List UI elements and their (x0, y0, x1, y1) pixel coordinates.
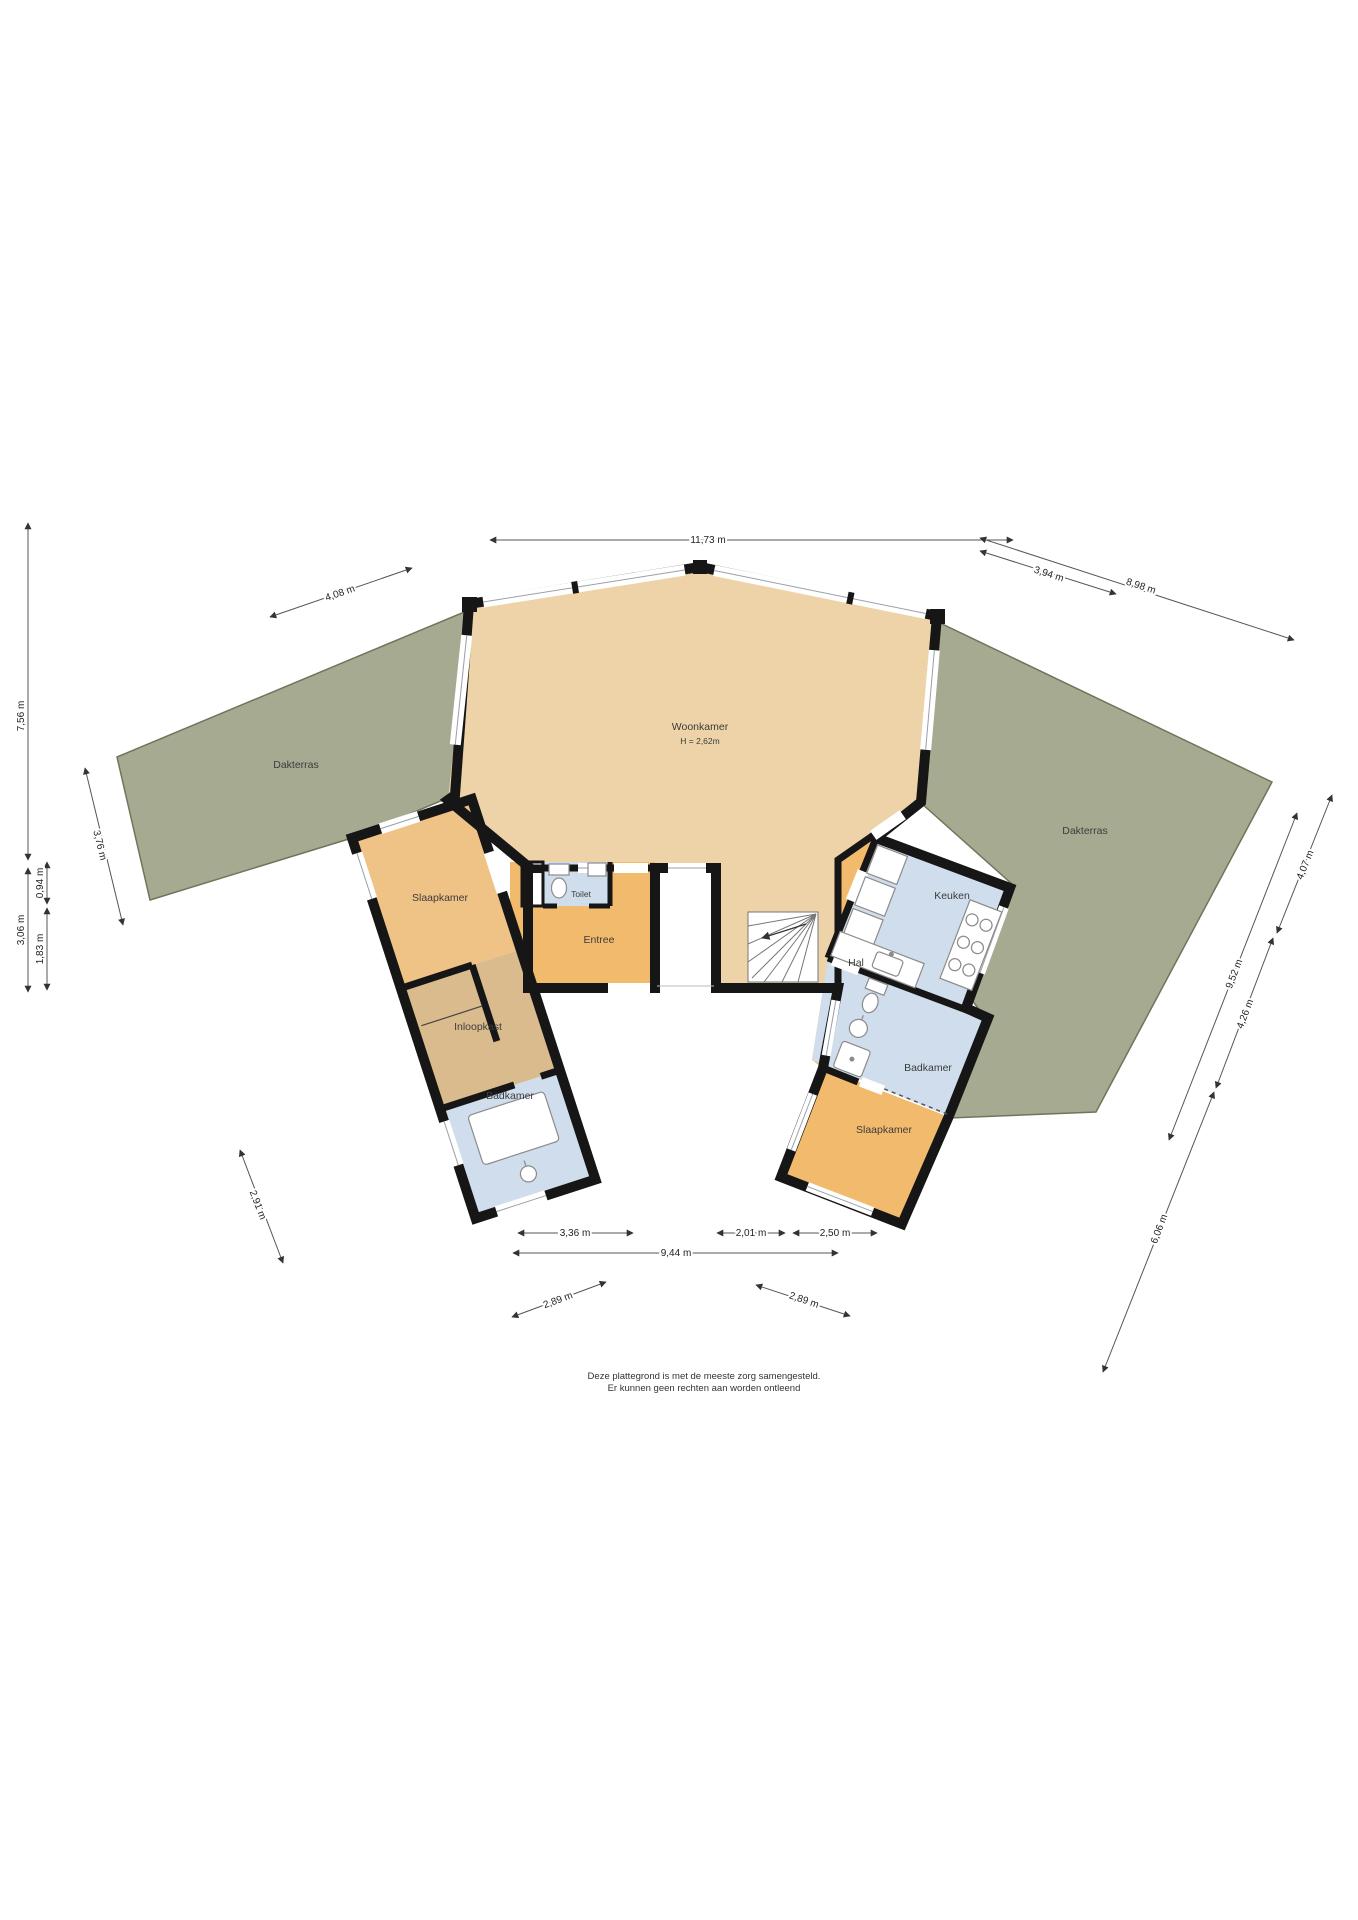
dim-label-bottom-seg-mid: 2,01 m (736, 1228, 767, 1239)
dim-label-bottom-seg-left: 3,36 m (560, 1228, 591, 1239)
dim-label-left-inner-upper: 0,94 m (35, 868, 46, 899)
staircase (748, 912, 818, 982)
dim-label-top-width: 11,73 m (690, 535, 725, 546)
room-label-woonkamer: Woonkamer (672, 721, 729, 733)
dim-label-left-inner-lower: 1,83 m (35, 934, 46, 965)
dim-label-bottom-seg-right: 2,50 m (820, 1228, 851, 1239)
dim-label-wing-left-lower: 2,91 m (247, 1189, 268, 1221)
wall-post-icon (462, 597, 477, 612)
floorplan-drawing: Woonkamer H = 2,62m Dakterras Dakterras … (0, 0, 1358, 1920)
sink-icon (588, 863, 606, 876)
dim-label-right-upper: 4,07 m (1295, 849, 1317, 881)
room-label-slaapkamer-left: Slaapkamer (412, 892, 469, 904)
window-notch-top (668, 863, 706, 873)
toilet-bowl-icon (552, 878, 567, 898)
toilet-tank-icon (549, 864, 569, 875)
room-label-woonkamer-height: H = 2,62m (680, 736, 719, 746)
dim-label-terrace-left-edge: 3,76 m (90, 829, 108, 861)
dim-label-top-left: 4,08 m (324, 583, 356, 603)
room-label-keuken: Keuken (934, 890, 970, 902)
dim-label-top-right-inner: 3,94 m (1033, 565, 1065, 585)
room-label-dakterras-right: Dakterras (1062, 825, 1108, 837)
room-label-badkamer-left: Badkamer (486, 1090, 534, 1102)
dim-label-top-right-outer: 8,98 m (1125, 577, 1157, 597)
door-entree-woonkamer (614, 863, 648, 873)
door-entree-exterior (608, 983, 650, 993)
dim-label-right-lower: 6,06 m (1149, 1213, 1170, 1245)
dim-label-bottom-diag-right: 2,89 m (788, 1290, 820, 1310)
room-label-badkamer-right: Badkamer (904, 1062, 952, 1074)
wall-post-icon (693, 560, 707, 574)
disclaimer-line2: Er kunnen geen rechten aan worden ontlee… (608, 1383, 801, 1394)
dim-label-left-total: 7,56 m (16, 701, 27, 732)
dim-label-right-total: 9,52 m (1224, 958, 1245, 990)
dim-label-bottom-diag-left: 2,89 m (542, 1290, 574, 1311)
dim-label-bottom-total: 9,44 m (661, 1248, 692, 1259)
room-label-hal: Hal (848, 957, 864, 969)
disclaimer-line1: Deze plattegrond is met de meeste zorg s… (588, 1371, 821, 1382)
room-label-entree: Entree (584, 934, 615, 946)
wall-post-icon (930, 609, 945, 624)
dim-label-left-lower: 3,06 m (16, 915, 27, 946)
room-label-slaapkamer-right: Slaapkamer (856, 1124, 913, 1136)
room-label-inloopkast: Inloopkast (454, 1021, 502, 1033)
room-label-toilet: Toilet (571, 889, 591, 899)
dim-label-right-mid: 4,26 m (1235, 998, 1256, 1030)
room-label-dakterras-left: Dakterras (273, 759, 319, 771)
floorplan-page: Woonkamer H = 2,62m Dakterras Dakterras … (0, 0, 1358, 1920)
